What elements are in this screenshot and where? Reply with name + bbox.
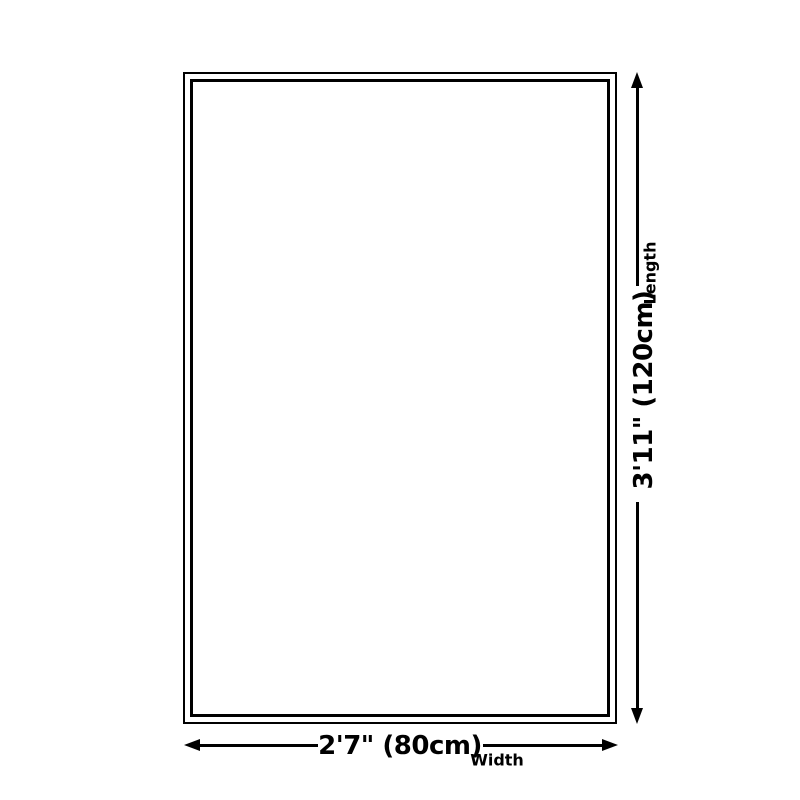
length-dimension-line-lower [636, 502, 639, 708]
length-dimension-line-upper [636, 86, 639, 286]
arrow-down-icon [631, 708, 643, 724]
rug-inner-border [190, 79, 610, 717]
rug-size-diagram: Length 3'11" (120cm) 2'7" (80cm) Width [0, 0, 800, 800]
width-dimension-line-right [483, 744, 603, 747]
length-value: 3'11" (120cm) [629, 291, 659, 490]
width-dimension-line-left [198, 744, 318, 747]
arrow-right-icon [602, 739, 618, 751]
width-label: Width [470, 751, 524, 770]
rug-outline [183, 72, 617, 724]
width-value: 2'7" (80cm) [318, 731, 482, 761]
